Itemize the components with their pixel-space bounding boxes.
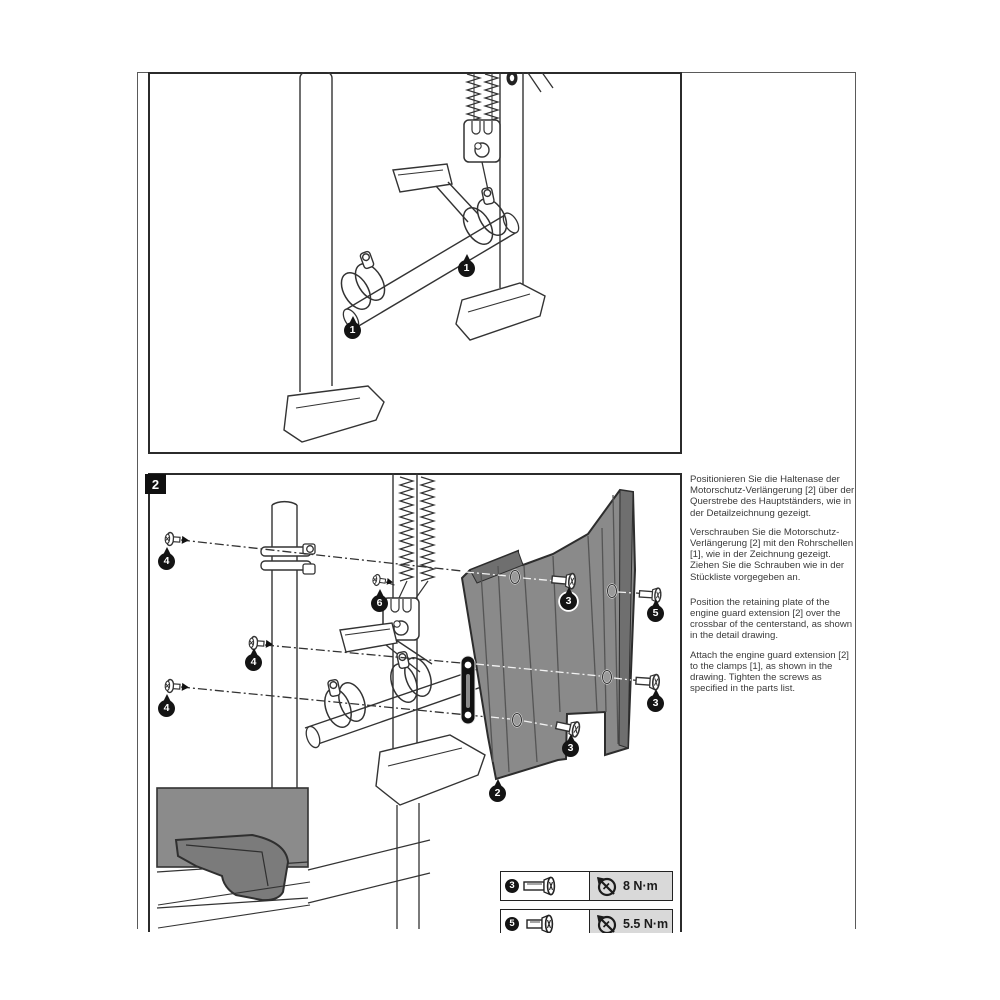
- torque-wrench-icon: [594, 874, 618, 898]
- callout-pin-screw3: 3: [647, 695, 664, 712]
- torque-cell: 8 N·m: [589, 872, 672, 900]
- retaining-tab-detail-inset: [157, 788, 430, 928]
- centerstand-detail-drawing: [148, 72, 682, 454]
- countersunk-screw-icon: [523, 876, 561, 896]
- pipe-clamp: [261, 544, 315, 574]
- step-number-badge: 2: [145, 474, 166, 494]
- callout-pin-plate: 2: [489, 785, 506, 802]
- callout-pin-screw3: 3: [560, 593, 577, 610]
- spring-bracket: [464, 120, 500, 162]
- instruction-text-column: Positionieren Sie die Haltenase der Moto…: [690, 474, 857, 702]
- instruction-en-2: Attach the engine guard extension [2] to…: [690, 650, 857, 695]
- callout-pin-clamp: 1: [458, 260, 475, 277]
- torque-value: 5.5 N·m: [623, 917, 668, 931]
- instruction-de-1: Positionieren Sie die Haltenase der Moto…: [690, 474, 857, 519]
- instruction-de-2: Verschrauben Sie die Motorschutz-Verläng…: [690, 527, 857, 583]
- bracket-screw-icon: [372, 574, 394, 588]
- manual-page: 1 1: [0, 0, 1000, 1000]
- clamp-screw-icon: [165, 679, 190, 694]
- engine-guard-assembly-drawing: [148, 473, 682, 932]
- clamp-screw-icon: [165, 532, 190, 547]
- page-crop-mask: [0, 933, 1000, 1000]
- page-border-left: [137, 72, 138, 929]
- callout-pin-screw4: 4: [245, 654, 262, 671]
- engine-guard-plate: [461, 490, 635, 779]
- instruction-en-block: Position the retaining plate of the engi…: [690, 597, 857, 695]
- left-foot: [284, 386, 384, 442]
- plate-screw-icon: [636, 673, 660, 690]
- centerstand-right-leg: [456, 72, 545, 340]
- brand-plate: [461, 656, 475, 724]
- torque-value: 8 N·m: [623, 879, 658, 893]
- callout-pin-screw3: 3: [505, 879, 519, 893]
- frame-mount-detail: [507, 72, 557, 92]
- countersunk-screw-icon: [523, 914, 561, 934]
- callout-pin-clamp: 1: [344, 322, 361, 339]
- torque-table-row: 3 8 N·m: [500, 871, 673, 901]
- callout-pin-screw6: 6: [371, 595, 388, 612]
- callout-pin-screw5: 5: [647, 605, 664, 622]
- part-cell: 3: [501, 872, 589, 900]
- instruction-en-1: Position the retaining plate of the engi…: [690, 597, 857, 642]
- pipe-clamp: [335, 251, 390, 315]
- centerstand-left-leg: [272, 502, 297, 790]
- callout-pin-screw4: 4: [158, 700, 175, 717]
- spring-rod: [482, 162, 488, 190]
- callout-pin-screw5: 5: [505, 917, 519, 931]
- callout-pin-screw4: 4: [158, 553, 175, 570]
- callout-pin-screw3: 3: [562, 740, 579, 757]
- return-springs: [467, 72, 498, 122]
